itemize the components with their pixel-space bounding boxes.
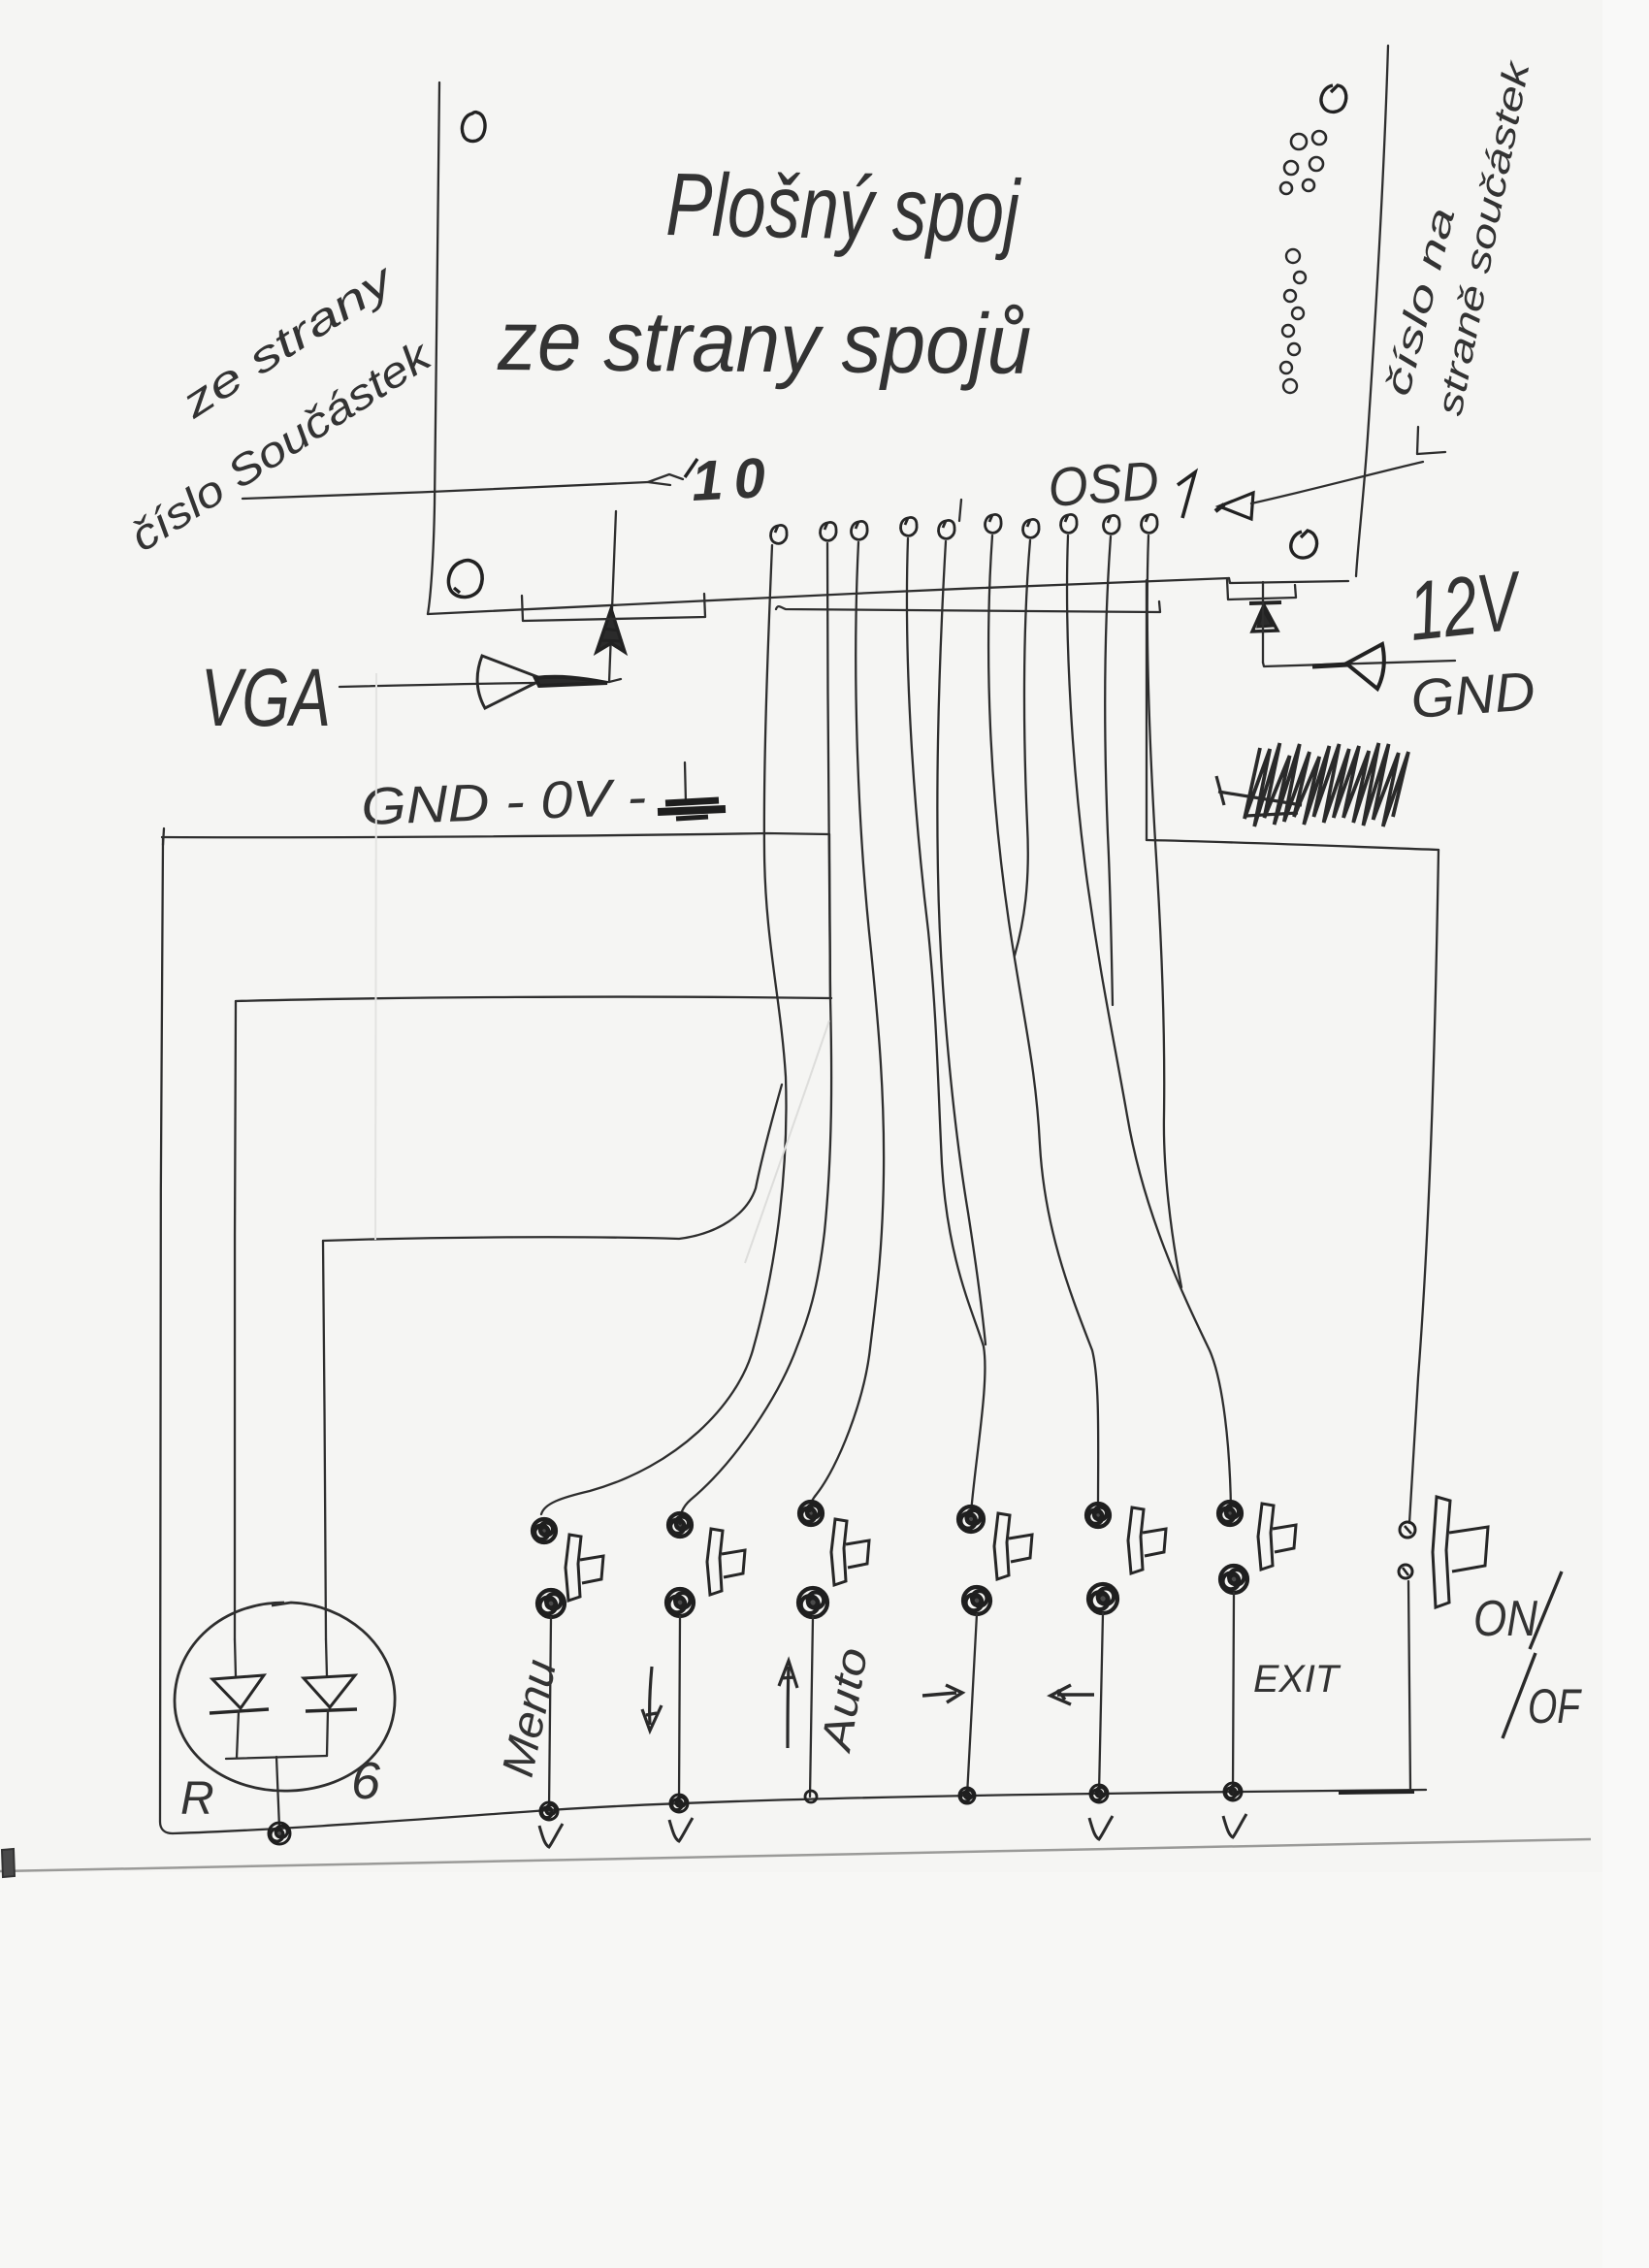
svg-text:6: 6 xyxy=(351,1752,381,1810)
svg-text:OSD: OSD xyxy=(1046,449,1160,518)
svg-text:GND: GND xyxy=(1408,660,1536,729)
svg-text:R: R xyxy=(180,1773,214,1825)
svg-text:VGA: VGA xyxy=(201,652,331,743)
svg-text:GND - 0V -: GND - 0V - xyxy=(360,768,647,836)
svg-text:OF: OF xyxy=(1528,1679,1582,1733)
svg-text:ON: ON xyxy=(1473,1591,1537,1647)
svg-text:Plošný spoj: Plošný spoj xyxy=(665,155,1022,262)
svg-text:ze strany spojů: ze strany spojů xyxy=(497,292,1032,392)
svg-text:EXIT: EXIT xyxy=(1253,1658,1342,1701)
svg-text:12V: 12V xyxy=(1405,554,1528,659)
